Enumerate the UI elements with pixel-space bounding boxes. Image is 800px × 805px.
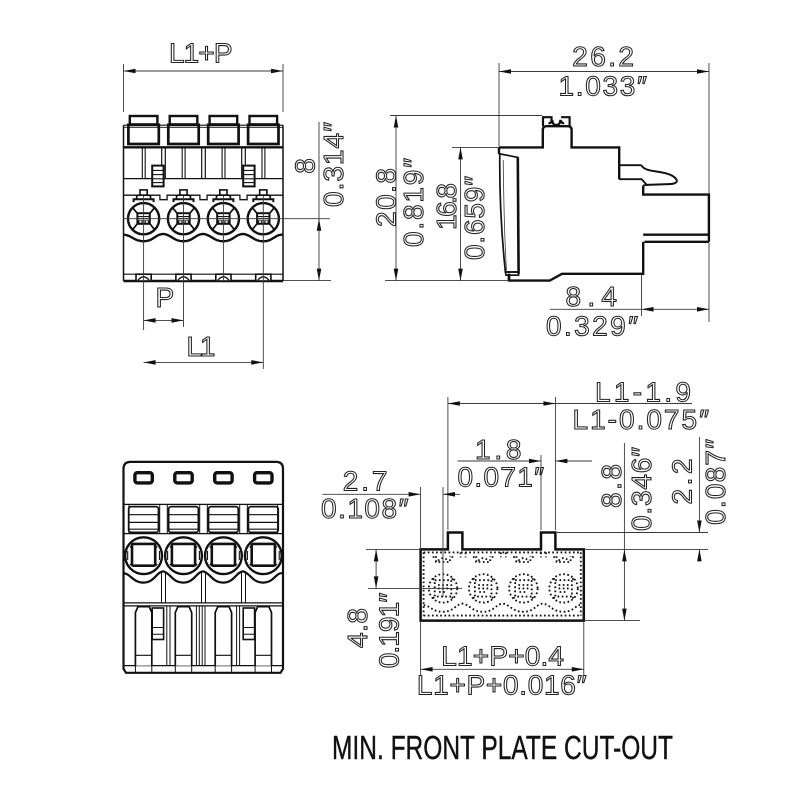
svg-text:L1-0.075″: L1-0.075″ — [573, 404, 711, 435]
svg-text:L1+P+0.4: L1+P+0.4 — [441, 641, 565, 672]
svg-text:2.2: 2.2 — [667, 458, 698, 505]
svg-text:2.7: 2.7 — [343, 466, 389, 497]
svg-text:0.191″: 0.191″ — [374, 592, 405, 669]
svg-text:MIN. FRONT PLATE CUT-OUT: MIN. FRONT PLATE CUT-OUT — [332, 729, 673, 766]
svg-text:P: P — [156, 282, 176, 313]
svg-text:0.108″: 0.108″ — [321, 493, 410, 524]
svg-text:0.087″: 0.087″ — [700, 438, 731, 525]
svg-text:8.4: 8.4 — [566, 281, 619, 312]
svg-text:0.819″: 0.819″ — [398, 157, 429, 247]
svg-text:1.033″: 1.033″ — [559, 71, 648, 102]
svg-text:0.329″: 0.329″ — [546, 311, 639, 342]
svg-text:0.071″: 0.071″ — [458, 462, 546, 493]
svg-text:0.314″: 0.314″ — [318, 121, 349, 207]
svg-text:1.8: 1.8 — [475, 434, 523, 465]
svg-text:0.659″: 0.659″ — [459, 175, 490, 260]
svg-text:L1: L1 — [187, 331, 217, 362]
svg-text:16.8: 16.8 — [431, 182, 462, 230]
svg-text:L1+P: L1+P — [169, 38, 234, 69]
svg-text:8: 8 — [290, 157, 321, 174]
svg-text:L1+P+0.016″: L1+P+0.016″ — [417, 670, 588, 701]
svg-text:26.2: 26.2 — [572, 41, 635, 72]
svg-text:8.8: 8.8 — [596, 463, 627, 508]
svg-text:20.8: 20.8 — [371, 167, 402, 227]
svg-text:4.8: 4.8 — [342, 607, 373, 648]
svg-text:0.346″: 0.346″ — [626, 446, 657, 531]
